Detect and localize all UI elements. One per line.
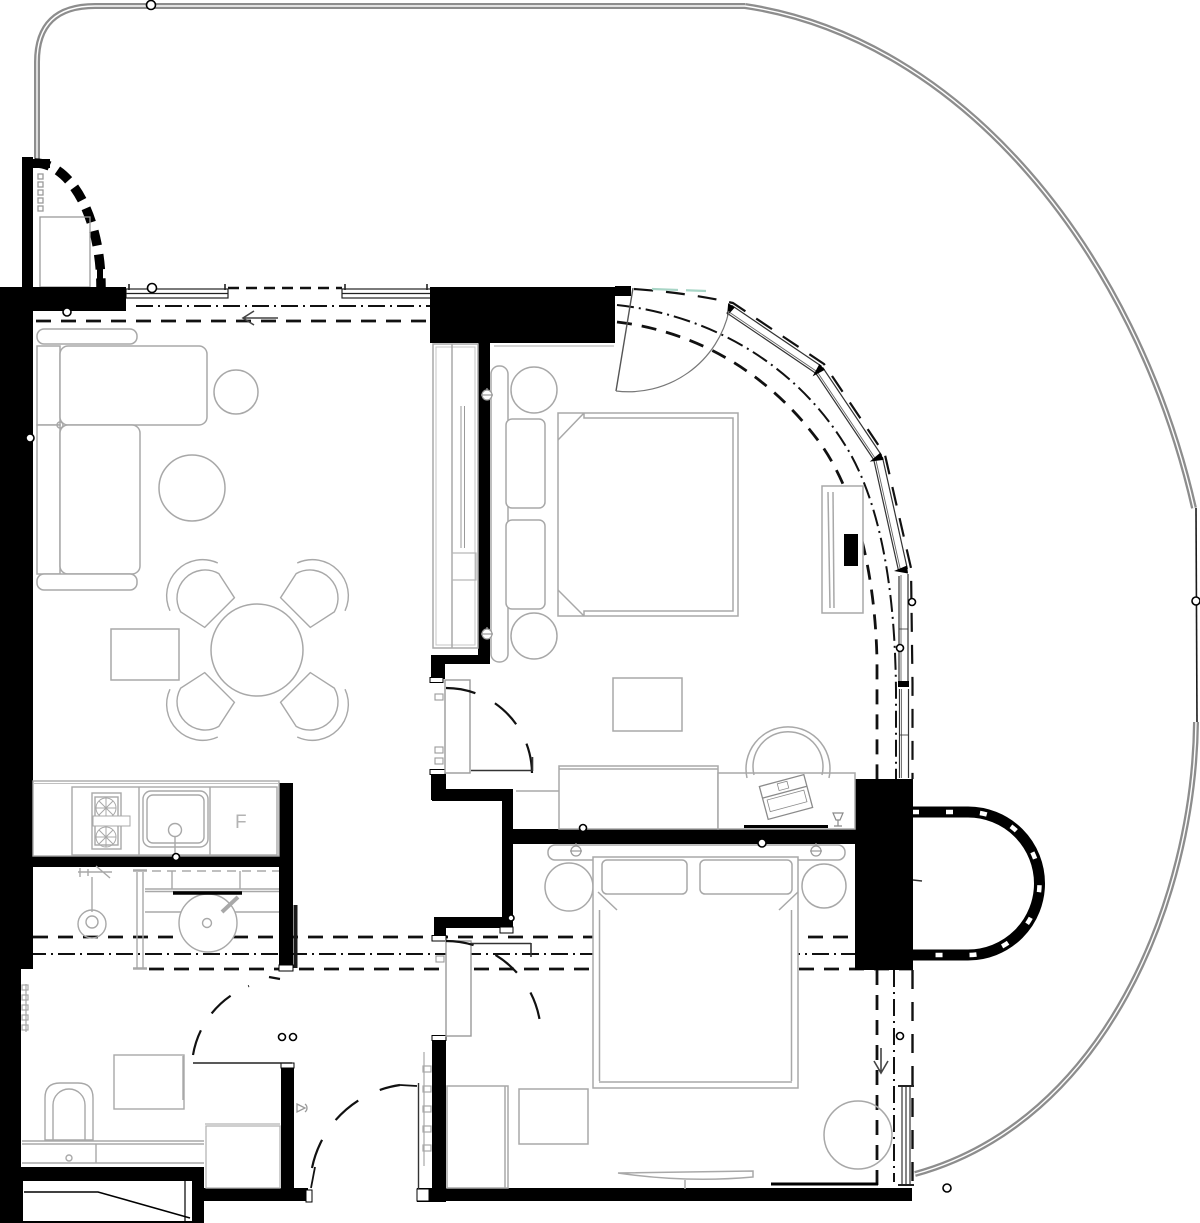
svg-text:F: F <box>235 812 247 833</box>
